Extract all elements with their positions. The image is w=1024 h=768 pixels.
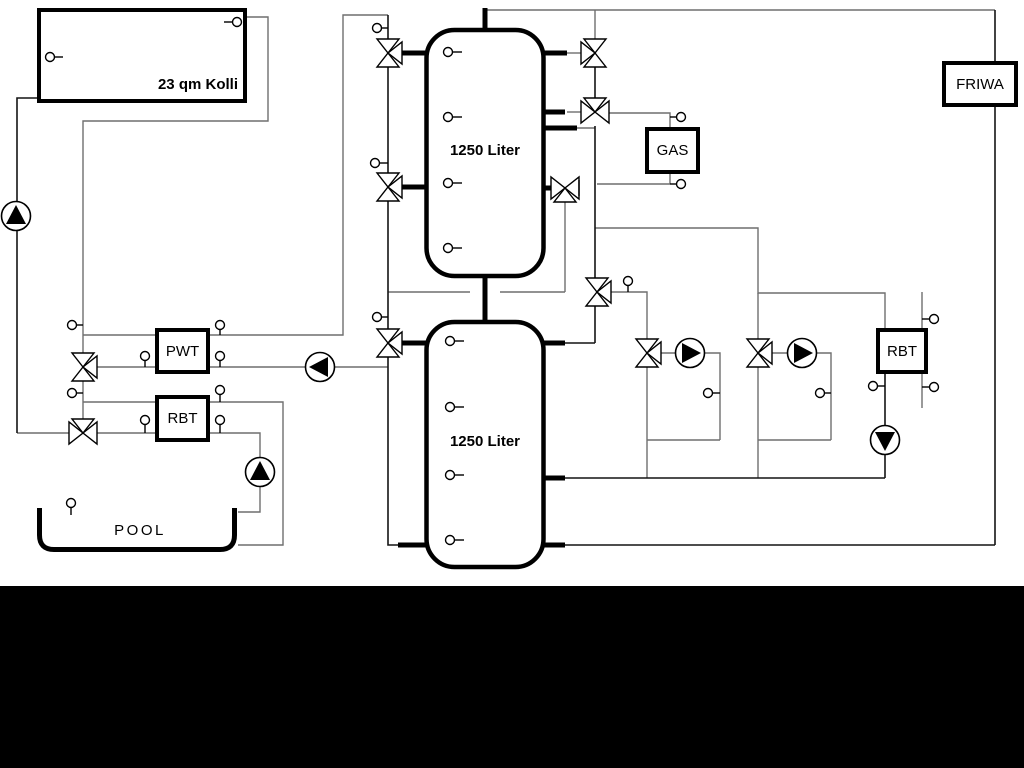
buffer-tank-top bbox=[427, 30, 544, 276]
temperature-sensor-icon bbox=[216, 321, 225, 336]
temperature-sensor-icon bbox=[68, 389, 84, 398]
temperature-sensor-icon bbox=[670, 180, 686, 189]
three-way-valve-icon bbox=[747, 339, 772, 367]
pump-icon bbox=[871, 426, 900, 455]
rbt-left-heat-exchanger-box bbox=[157, 397, 208, 440]
rbt-right-heat-exchanger-box bbox=[878, 330, 926, 372]
temperature-sensor-icon bbox=[670, 113, 686, 122]
temperature-sensor-icon bbox=[704, 389, 721, 398]
three-way-valve-icon bbox=[551, 177, 579, 202]
gas-boiler-box bbox=[647, 129, 698, 172]
friwa-station-box bbox=[944, 63, 1016, 105]
temperature-sensor-icon bbox=[216, 416, 225, 434]
pwt-heat-exchanger-box bbox=[157, 330, 208, 372]
temperature-sensor-icon bbox=[141, 416, 150, 434]
pump-icon bbox=[2, 202, 31, 231]
three-way-valve-icon bbox=[581, 98, 609, 123]
temperature-sensor-icon bbox=[216, 386, 225, 403]
temperature-sensor-icon bbox=[624, 277, 633, 293]
temperature-sensor-icon bbox=[922, 315, 939, 324]
three-way-valve-icon bbox=[377, 173, 402, 201]
three-way-valve-icon bbox=[377, 329, 402, 357]
pump-icon bbox=[306, 353, 335, 382]
pool-basin bbox=[40, 508, 235, 550]
temperature-sensor-icon bbox=[141, 352, 150, 368]
hydraulic-schematic-canvas bbox=[0, 0, 1024, 586]
solar-collector-box bbox=[39, 10, 245, 101]
three-way-valve-icon bbox=[69, 419, 97, 444]
three-way-valve-icon bbox=[377, 39, 402, 67]
temperature-sensor-icon bbox=[373, 313, 389, 322]
temperature-sensor-icon bbox=[216, 352, 225, 368]
buffer-tank-bottom bbox=[427, 322, 544, 567]
pump-icon bbox=[676, 339, 705, 368]
schematic-page: 23 qm Kolli 1250 Liter 1250 Liter GAS FR… bbox=[0, 0, 1024, 768]
temperature-sensor-icon bbox=[68, 321, 84, 330]
three-way-valve-icon bbox=[586, 278, 611, 306]
pump-icon bbox=[246, 458, 275, 487]
three-way-valve-icon bbox=[72, 353, 97, 381]
three-way-valve-icon bbox=[636, 339, 661, 367]
temperature-sensor-icon bbox=[371, 159, 389, 168]
three-way-valve-icon bbox=[581, 39, 606, 67]
temperature-sensor-icon bbox=[869, 382, 886, 391]
pump-icon bbox=[788, 339, 817, 368]
temperature-sensor-icon bbox=[816, 389, 832, 398]
temperature-sensor-icon bbox=[922, 383, 939, 392]
temperature-sensor-icon bbox=[67, 499, 76, 516]
temperature-sensor-icon bbox=[373, 24, 389, 33]
bottom-black-band bbox=[0, 586, 1024, 768]
